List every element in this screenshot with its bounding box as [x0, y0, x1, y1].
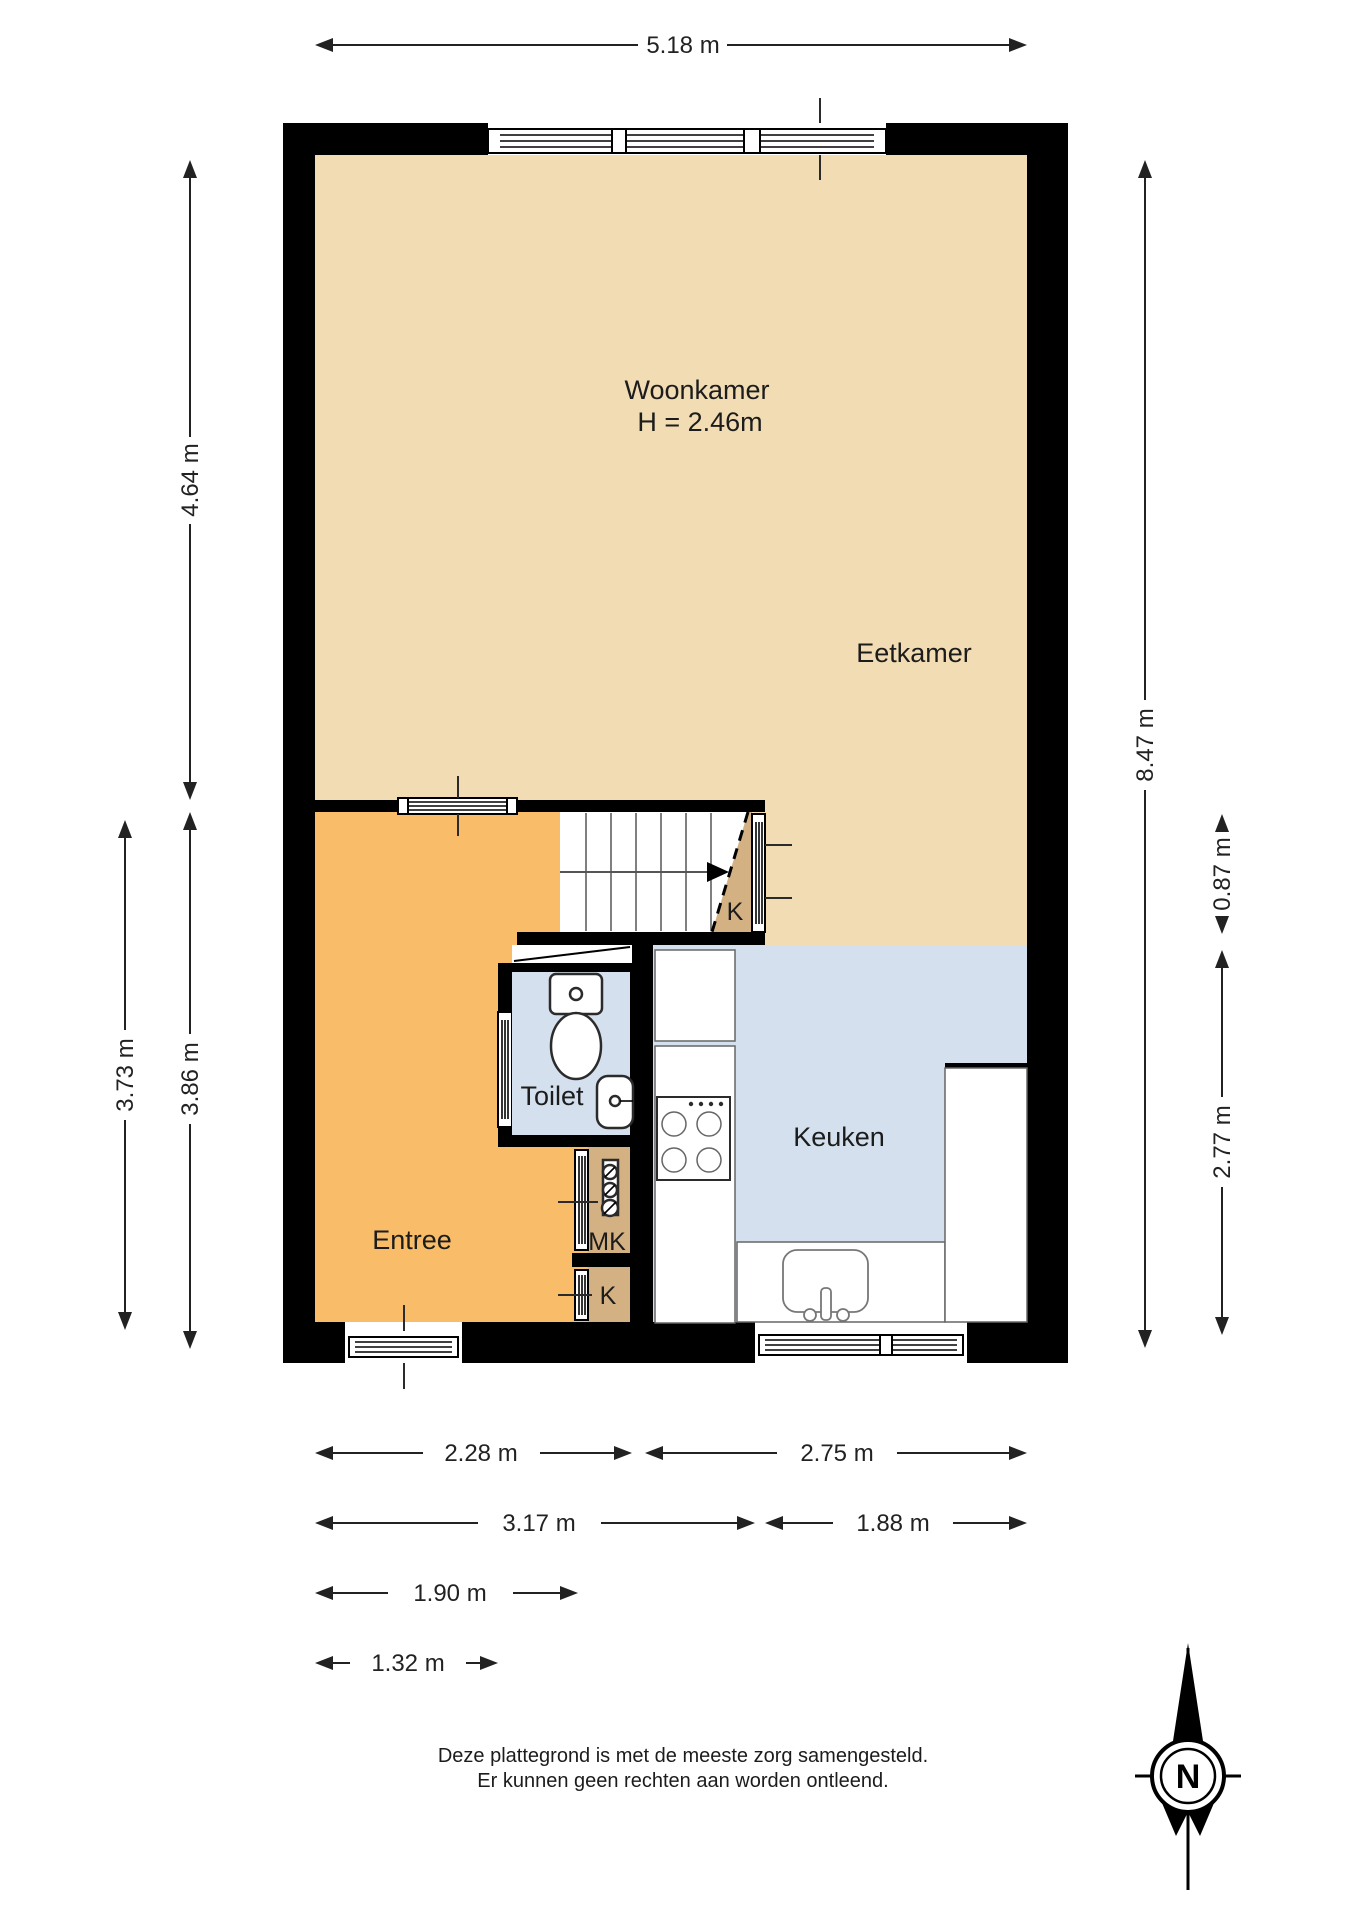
dim-bottom-row1-left: 2.28 m [315, 1440, 632, 1467]
wall-woonkamer-entree-right [517, 800, 765, 812]
stairs: K [560, 812, 752, 932]
dim-right-full: 8.47 m [1132, 160, 1159, 1348]
dim-left-lower-inner: 3.86 m [177, 812, 204, 1349]
stove-fixture [657, 1097, 730, 1180]
counter-left-lower [655, 1046, 735, 1323]
passage-door [512, 945, 632, 963]
floorplan-canvas: K [0, 0, 1358, 1920]
dim-bottom-row1-left-label: 2.28 m [444, 1440, 517, 1467]
wall-toilet-left-upper [498, 963, 512, 1012]
toilet-fixture [550, 974, 602, 1079]
dim-bottom-row1-right-label: 2.75 m [800, 1440, 873, 1467]
disclaimer-line2: Er kunnen geen rechten aan worden ontlee… [477, 1770, 888, 1792]
room-label-keuken: Keuken [793, 1122, 885, 1152]
dim-bottom-row2-left: 3.17 m [315, 1510, 755, 1537]
compass-north-label: N [1176, 1758, 1201, 1796]
dim-right-kitchen: 2.77 m [1209, 950, 1236, 1335]
wall-woonkamer-entree-left [315, 800, 398, 812]
dim-bottom-row1-right: 2.75 m [645, 1440, 1027, 1467]
dim-left-lower-inner-label: 3.86 m [177, 1042, 204, 1115]
floorplan-page: K [0, 0, 1358, 1920]
closet-under-stairs-label: K [727, 898, 744, 926]
wall-left [283, 123, 315, 1363]
wall-bottom-middle [462, 1322, 755, 1363]
counter-left-upper [655, 950, 735, 1041]
dim-right-full-label: 8.47 m [1132, 708, 1159, 781]
room-label-eetkamer: Eetkamer [856, 638, 972, 668]
wall-right [1027, 123, 1068, 1363]
disclaimer: Deze plattegrond is met de meeste zorg s… [438, 1745, 928, 1792]
window-keuken [755, 1322, 967, 1363]
dim-left-upper-label: 4.64 m [177, 443, 204, 516]
dim-left-lower-outer: 3.73 m [112, 820, 139, 1330]
dim-left-lower-outer-label: 3.73 m [112, 1038, 139, 1111]
room-height-note: H = 2.46m [637, 407, 762, 437]
room-label-meterkast: MK [588, 1228, 626, 1256]
disclaimer-line1: Deze plattegrond is met de meeste zorg s… [438, 1745, 928, 1767]
dim-bottom-row4: 1.32 m [315, 1650, 498, 1677]
counter-right [945, 1068, 1027, 1322]
north-compass-icon: N [1135, 1643, 1241, 1890]
compass-north-arrow [1173, 1643, 1203, 1741]
dim-top-width: 5.18 m [315, 32, 1027, 59]
wall-toilet-top [498, 963, 632, 972]
dim-left-upper: 4.64 m [177, 160, 204, 800]
dim-bottom-row4-label: 1.32 m [371, 1650, 444, 1677]
meter-panel [602, 1160, 618, 1216]
wall-bottom-right [967, 1322, 1068, 1363]
dim-bottom-row3-label: 1.90 m [413, 1580, 486, 1607]
room-label-entree: Entree [372, 1225, 452, 1255]
room-label-toilet: Toilet [520, 1081, 584, 1111]
wall-bottom-left [283, 1322, 345, 1363]
dim-right-stairs-label: 0.87 m [1209, 837, 1236, 910]
dim-right-stairs: 0.87 m [1209, 814, 1236, 934]
wall-closet-column [630, 932, 653, 1331]
dim-bottom-row3: 1.90 m [315, 1580, 578, 1607]
room-label-kast-hal: K [600, 1282, 617, 1310]
toilet-sink-fixture [597, 1076, 633, 1128]
dim-right-kitchen-label: 2.77 m [1209, 1105, 1236, 1178]
wall-toilet-bottom [498, 1135, 653, 1147]
dim-bottom-row2-right-label: 1.88 m [856, 1510, 929, 1537]
toilet-door [498, 1012, 512, 1127]
dim-bottom-row2-left-label: 3.17 m [502, 1510, 575, 1537]
dim-top-width-label: 5.18 m [646, 32, 719, 59]
meterkast-door [575, 1150, 588, 1250]
kitchen-sink-fixture [783, 1250, 868, 1321]
room-label-woonkamer: Woonkamer [624, 375, 769, 405]
dim-bottom-row2-right: 1.88 m [765, 1510, 1027, 1537]
toilet-room: Toilet [512, 972, 633, 1135]
